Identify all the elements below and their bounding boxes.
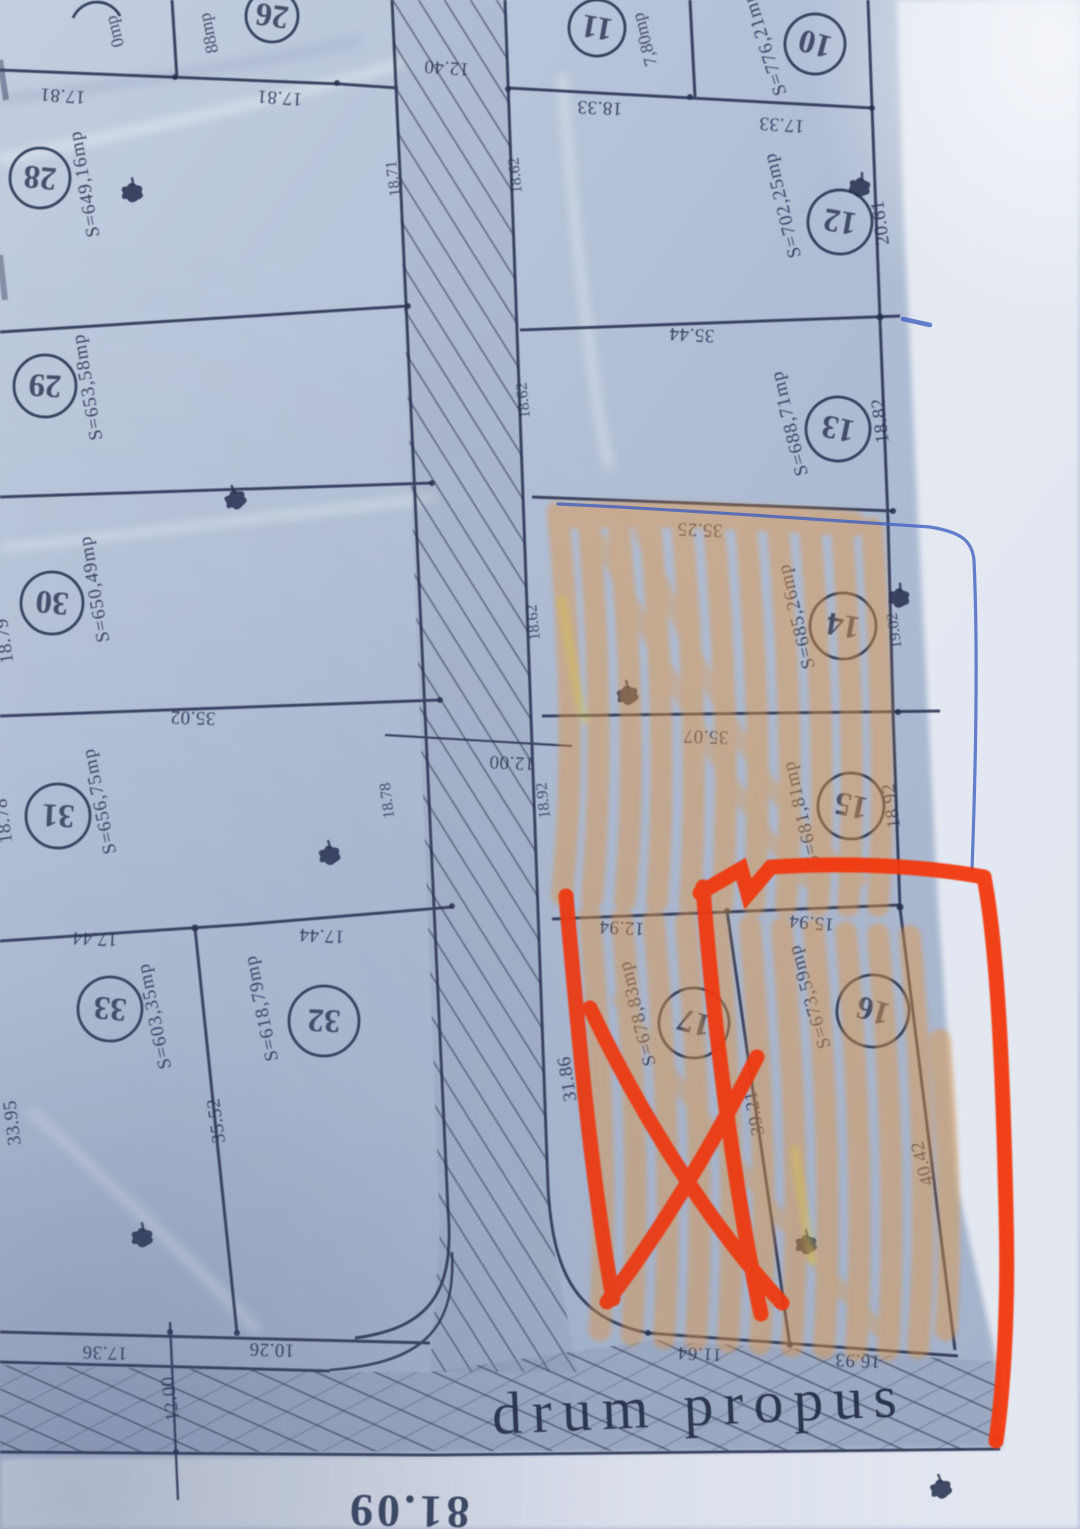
cadastral-plan-photo: 26 28 29 30 31 33 32 11 10 12 13 14 15 1… [0, 0, 1080, 1529]
vignette [0, 0, 1080, 1529]
plan-drawing: 26 28 29 30 31 33 32 11 10 12 13 14 15 1… [0, 0, 1080, 1529]
